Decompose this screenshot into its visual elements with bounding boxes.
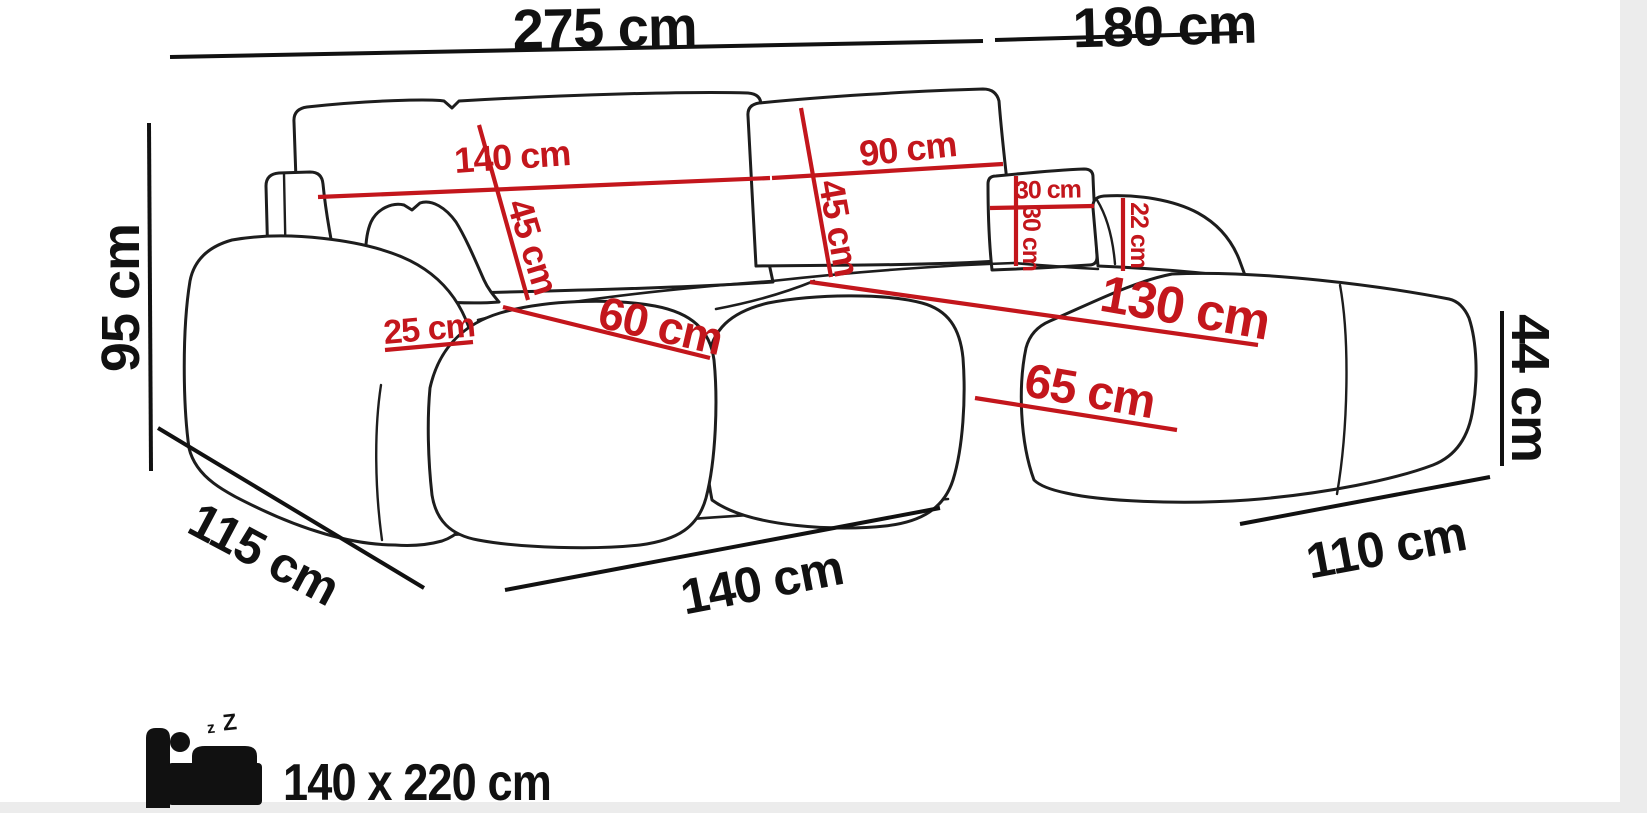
diagram-canvas: 140 cm 45 cm 90 cm 45 cm 30 cm 30 cm 22 … (0, 0, 1647, 813)
dim-label-seat-height: 44 cm (1500, 314, 1560, 462)
dim-label-armrest-left-width: 25 cm (382, 306, 476, 352)
bed-person-head (170, 732, 190, 752)
sofa-drawing (184, 89, 1476, 548)
bed-base (168, 763, 262, 805)
dim-label-back-left-width: 140 cm (453, 132, 572, 181)
sleeping-bed-icon (146, 728, 262, 808)
dim-label-side-depth-right: 110 cm (1302, 505, 1470, 590)
seat-cushion-middle (705, 296, 965, 528)
zzz-large: Z (221, 708, 238, 735)
dim-label-back-width-left: 275 cm (512, 0, 697, 61)
sleeping-function: z Z 140 x 220 cm (146, 708, 551, 812)
dim-label-back-width-right: 180 cm (1072, 0, 1258, 59)
bed-size-label: 140 x 220 cm (283, 754, 551, 812)
right-edge-band (1620, 0, 1647, 813)
bed-headboard (146, 728, 170, 808)
dim-label-pillow-width: 30 cm (1015, 175, 1081, 204)
dim-label-pillow-height: 30 cm (1017, 205, 1045, 271)
bed-blanket (192, 746, 257, 763)
dim-label-armrest-right-height: 22 cm (1125, 202, 1153, 268)
sofa-dimension-diagram: 140 cm 45 cm 90 cm 45 cm 30 cm 30 cm 22 … (0, 0, 1647, 813)
dim-label-total-height: 95 cm (91, 224, 151, 372)
zzz-small: z (206, 720, 216, 738)
